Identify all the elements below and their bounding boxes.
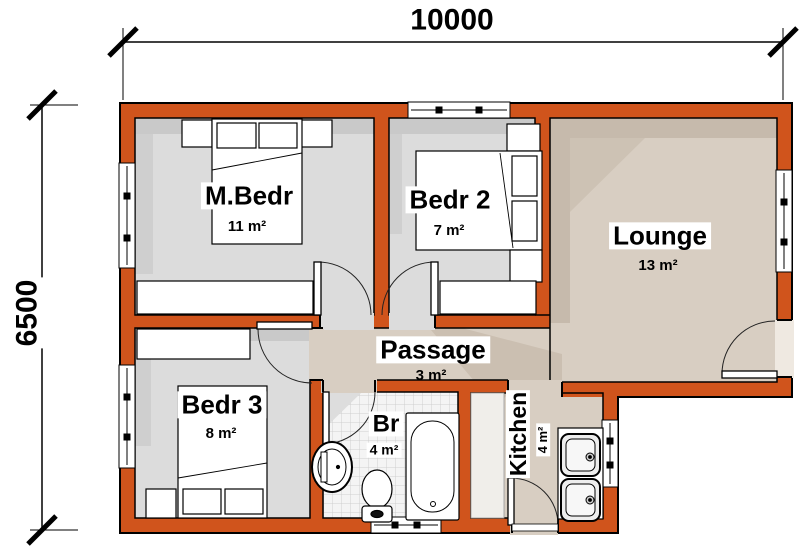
floor-plan-page: 10000 6500 M.Bedr 11 m² Bedr 2 7 m² Loun… (0, 0, 800, 549)
room-area-passage: 3 m² (416, 368, 447, 384)
room-label-bathroom: Br (369, 411, 404, 436)
room-label-bedr3: Bedr 3 (178, 391, 267, 418)
kitchen-counter (471, 393, 504, 518)
dimension-height-label: 6500 (11, 278, 43, 349)
room-area-bedr2: 7 m² (434, 223, 465, 239)
room-label-bedr2: Bedr 2 (406, 186, 495, 213)
wall-bath-kitchen (458, 380, 471, 518)
shelf-bedr2 (507, 124, 540, 151)
room-area-lounge: 13 m² (638, 258, 677, 274)
window-bedr3 (119, 365, 135, 468)
wall-kitchen-top (471, 380, 508, 393)
window-kitchen (602, 420, 618, 487)
room-label-mbedr: M.Bedr (201, 182, 297, 209)
room-area-mbedr: 11 m² (228, 219, 266, 235)
room-area-bathroom: 4 m² (367, 443, 402, 458)
room-area-bedr3: 8 m² (206, 426, 237, 442)
wall-bedr2-bottom (435, 315, 550, 328)
room-label-lounge: Lounge (609, 222, 711, 249)
wall-mbedr-bedr2 (374, 118, 389, 328)
kitchen-sink-icon (558, 428, 603, 521)
room-label-passage: Passage (376, 336, 490, 363)
window-mbedr (119, 163, 135, 268)
wall-lounge-bottom (562, 382, 792, 397)
nightstand (301, 120, 332, 147)
room-label-kitchen: Kitchen (506, 390, 530, 478)
basin-icon (312, 442, 352, 492)
nightstand (182, 120, 212, 147)
toilet-icon (362, 470, 392, 522)
window-bedr2 (408, 102, 510, 118)
window-lounge (776, 170, 792, 272)
desk-bedr2 (440, 281, 536, 314)
nightstand (146, 489, 176, 518)
floor-plan-drawing (0, 0, 800, 549)
room-area-kitchen: 4 m² (536, 424, 550, 457)
wardrobe-mbedr (137, 281, 313, 314)
dimension-width-label: 10000 (408, 4, 495, 36)
wardrobe-bedr3 (137, 329, 250, 359)
bathtub-icon (406, 413, 459, 520)
